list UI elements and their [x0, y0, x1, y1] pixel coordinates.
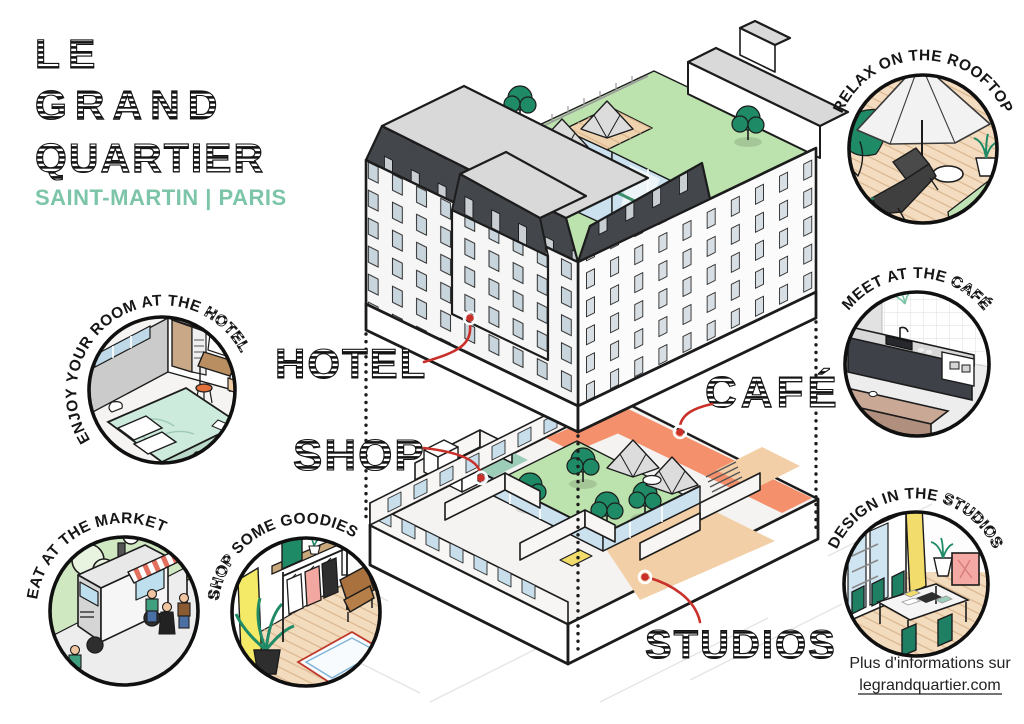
poster: LE GRAND QUARTIER SAINT-MARTIN | PARIS: [0, 0, 1024, 724]
label-cafe: CAFÉ: [705, 367, 841, 417]
logo-line-3: QUARTIER: [35, 135, 265, 181]
courtyard-table: [643, 476, 661, 485]
side-table-icon: [933, 166, 963, 182]
label-studios: STUDIOS: [645, 623, 837, 667]
curtain-icon: [906, 505, 926, 594]
bar-stool-icon: [856, 432, 926, 476]
logo-line-1: LE: [35, 31, 103, 77]
footer: Plus d'informations sur legrandquartier.…: [849, 655, 1011, 694]
studios-illustration: [842, 505, 990, 660]
poster-canvas: LE GRAND QUARTIER SAINT-MARTIN | PARIS: [0, 0, 1024, 724]
logo-line-2: GRAND: [35, 82, 225, 128]
label-hotel: HOTEL: [275, 340, 427, 387]
footer-link[interactable]: legrandquartier.com: [859, 677, 1000, 694]
label-shop: SHOP: [293, 431, 426, 480]
brand-logo: LE GRAND QUARTIER SAINT-MARTIN | PARIS: [35, 31, 287, 210]
brand-subtitle: SAINT-MARTIN | PARIS: [35, 185, 287, 210]
footer-info-text: Plus d'informations sur: [849, 655, 1011, 672]
